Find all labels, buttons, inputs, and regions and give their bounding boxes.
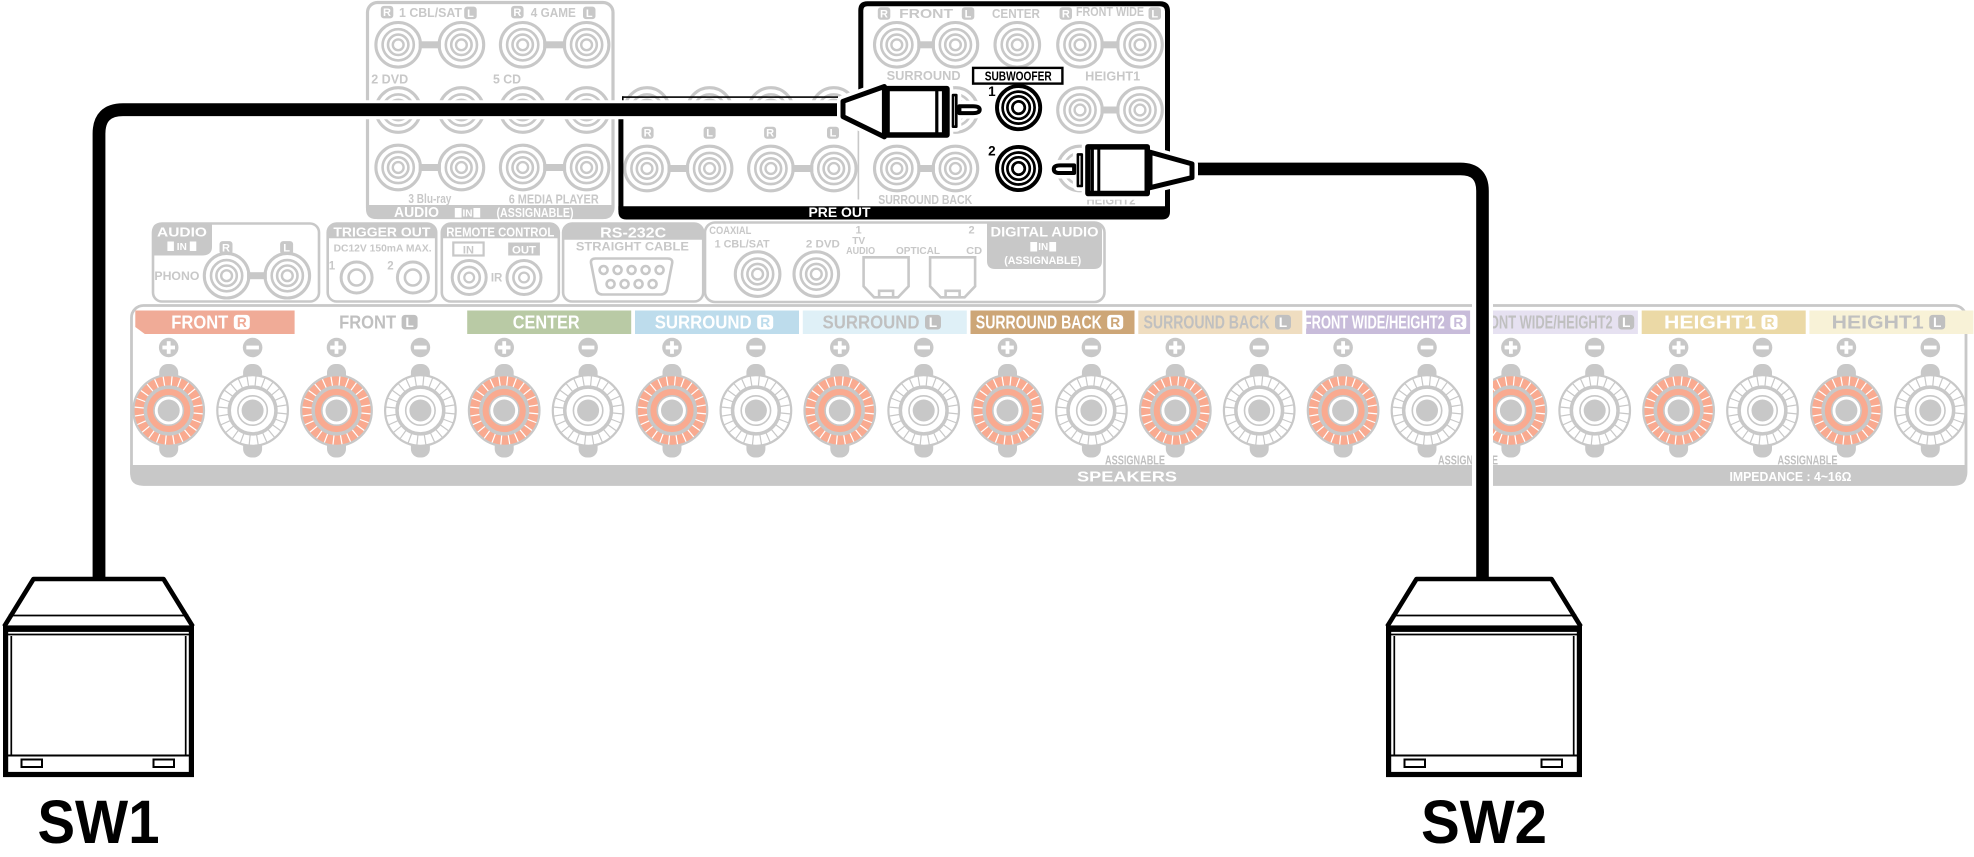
svg-text:5 CD: 5 CD	[493, 72, 521, 87]
svg-text:(ASSIGNABLE): (ASSIGNABLE)	[497, 206, 574, 220]
svg-text:ASSIGNABLE: ASSIGNABLE	[1105, 453, 1165, 468]
svg-text:2: 2	[387, 261, 393, 273]
svg-text:R: R	[237, 315, 247, 330]
svg-text:SURROUND: SURROUND	[655, 313, 752, 333]
svg-text:DIGITAL AUDIO: DIGITAL AUDIO	[991, 224, 1099, 240]
svg-text:L: L	[1933, 315, 1941, 330]
svg-text:HEIGHT1: HEIGHT1	[1085, 70, 1140, 84]
svg-text:SURROUND: SURROUND	[823, 313, 920, 333]
svg-text:L: L	[706, 128, 713, 140]
svg-text:R: R	[1453, 315, 1463, 330]
svg-text:R: R	[644, 128, 652, 140]
svg-text:HEIGHT1: HEIGHT1	[1832, 313, 1924, 333]
svg-text:2 DVD: 2 DVD	[806, 238, 840, 250]
svg-text:CENTER: CENTER	[992, 7, 1040, 21]
svg-text:SURROUND BACK: SURROUND BACK	[1144, 313, 1270, 333]
svg-text:(ASSIGNABLE): (ASSIGNABLE)	[1004, 255, 1081, 267]
svg-text:FRONT WIDE/HEIGHT2: FRONT WIDE/HEIGHT2	[1304, 313, 1445, 333]
svg-text:SURROUND BACK: SURROUND BACK	[976, 313, 1102, 333]
svg-text:CENTER: CENTER	[513, 313, 580, 333]
svg-text:FRONT: FRONT	[171, 313, 228, 333]
svg-text:FRONT: FRONT	[899, 7, 953, 21]
svg-text:PRE OUT: PRE OUT	[809, 204, 871, 220]
svg-text:R: R	[513, 7, 521, 19]
svg-text:R: R	[760, 315, 770, 330]
svg-text:SPEAKERS: SPEAKERS	[1077, 470, 1177, 486]
svg-text:IN: IN	[1038, 242, 1048, 253]
svg-text:SW2: SW2	[1421, 788, 1547, 856]
svg-text:SURROUND: SURROUND	[887, 69, 961, 83]
svg-text:3 Blu-ray: 3 Blu-ray	[408, 192, 451, 206]
svg-text:OUT: OUT	[512, 245, 536, 257]
svg-text:ASSIGNABLE: ASSIGNABLE	[1778, 453, 1838, 468]
svg-text:IN: IN	[463, 245, 474, 257]
svg-text:L: L	[1279, 315, 1287, 330]
svg-text:R: R	[1110, 315, 1120, 330]
svg-text:OPTICAL: OPTICAL	[896, 245, 941, 257]
svg-text:REMOTE CONTROL: REMOTE CONTROL	[446, 225, 554, 240]
svg-text:IN: IN	[177, 242, 187, 253]
svg-text:SUBWOOFER: SUBWOOFER	[985, 69, 1052, 83]
svg-text:TRIGGER OUT: TRIGGER OUT	[333, 225, 430, 240]
svg-text:2: 2	[988, 143, 996, 158]
svg-text:STRAIGHT CABLE: STRAIGHT CABLE	[576, 242, 689, 254]
svg-text:1: 1	[988, 84, 996, 99]
svg-text:R: R	[383, 7, 391, 19]
svg-text:R: R	[880, 9, 888, 21]
svg-text:R: R	[1062, 9, 1070, 21]
svg-text:CD: CD	[966, 245, 982, 257]
svg-text:AUDIO: AUDIO	[157, 225, 207, 240]
svg-text:1 CBL/SAT: 1 CBL/SAT	[715, 238, 770, 250]
svg-text:DC12V 150mA MAX.: DC12V 150mA MAX.	[334, 243, 432, 255]
svg-text:SURROUND BACK: SURROUND BACK	[878, 193, 972, 207]
svg-text:L: L	[1151, 9, 1158, 21]
svg-text:1: 1	[329, 261, 336, 273]
svg-text:6 MEDIA PLAYER: 6 MEDIA PLAYER	[509, 193, 599, 207]
svg-text:4 GAME: 4 GAME	[531, 5, 576, 20]
svg-text:R: R	[766, 128, 774, 140]
svg-text:HEIGHT1: HEIGHT1	[1664, 313, 1756, 333]
svg-text:L: L	[586, 8, 593, 20]
svg-text:R: R	[1765, 315, 1775, 330]
svg-text:COAXIAL: COAXIAL	[709, 225, 751, 237]
svg-text:RS-232C: RS-232C	[600, 226, 667, 242]
svg-text:AUDIO: AUDIO	[394, 205, 439, 221]
svg-text:IR: IR	[491, 273, 503, 285]
svg-text:SW1: SW1	[38, 788, 160, 856]
svg-text:AUDIO: AUDIO	[846, 245, 875, 257]
svg-text:L: L	[405, 315, 413, 330]
svg-text:L: L	[830, 128, 837, 140]
svg-text:FRONT WIDE: FRONT WIDE	[1076, 5, 1144, 19]
svg-text:FRONT: FRONT	[339, 313, 396, 333]
svg-text:L: L	[965, 9, 972, 21]
svg-text:L: L	[929, 315, 937, 330]
svg-text:1 CBL/SAT: 1 CBL/SAT	[399, 5, 462, 20]
svg-text:IMPEDANCE : 4~16Ω: IMPEDANCE : 4~16Ω	[1730, 470, 1852, 484]
svg-text:L: L	[1622, 315, 1630, 330]
svg-text:2: 2	[969, 225, 975, 237]
svg-text:IN: IN	[463, 208, 473, 219]
svg-text:L: L	[467, 8, 474, 20]
svg-text:PHONO: PHONO	[154, 271, 199, 283]
svg-text:2 DVD: 2 DVD	[371, 72, 408, 87]
